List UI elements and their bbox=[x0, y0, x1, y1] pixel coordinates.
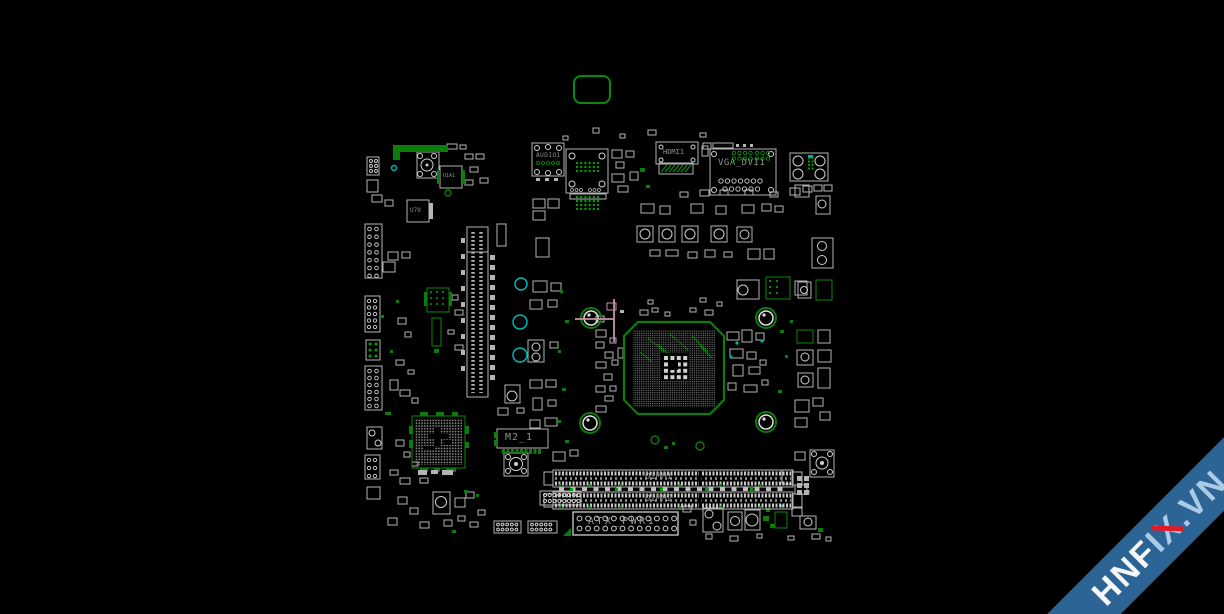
boardview-window: AUDIO1 HDMI1 VGA_DVI1 U1A1 U70 M2_1 DIMM… bbox=[0, 0, 1224, 614]
label-m2-1: M2_1 bbox=[505, 433, 533, 443]
label-hdmi1: HDMI1 bbox=[663, 149, 684, 156]
label-vga-dvi1: VGA_DVI1 bbox=[718, 159, 765, 168]
label-audio1: AUDIO1 bbox=[536, 153, 561, 159]
label-dimm1: DIMM1 bbox=[645, 473, 672, 482]
label-u70: U70 bbox=[410, 208, 421, 214]
label-dimm2: DIMM2 bbox=[645, 495, 672, 504]
label-u1a1: U1A1 bbox=[443, 174, 455, 179]
label-atx-pwr1: ATX_PWR1 bbox=[588, 517, 656, 527]
highlighted-component-outline bbox=[573, 75, 611, 104]
